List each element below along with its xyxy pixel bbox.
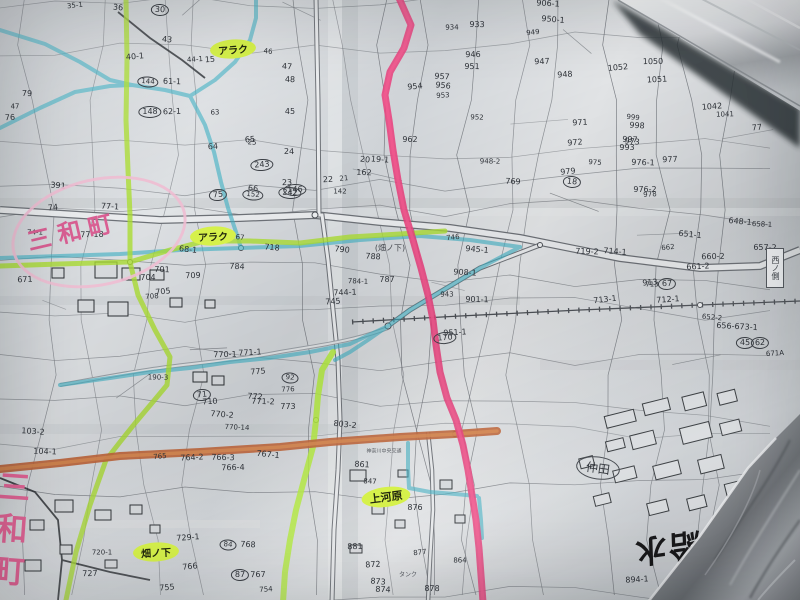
note-tank: タンク [399, 570, 417, 579]
parcel-number: 776 [281, 386, 295, 393]
note-hatanoshita-small: (畑ノ下) [375, 243, 405, 254]
parcel-number: 993 [619, 144, 634, 152]
parcel-number: 894-1 [625, 575, 649, 584]
parcel-number: 755 [159, 583, 175, 592]
parcel-number: 64 [208, 143, 219, 152]
parcel-number: 662 [661, 244, 675, 252]
parcel-number: 948 [557, 70, 573, 79]
parcel-number: 947 [534, 58, 550, 67]
parcel-number: 705 [155, 287, 171, 297]
parcel-number: 770-14 [224, 424, 249, 432]
parcel-number: 913 [642, 278, 658, 287]
parcel-number: 767 [250, 571, 265, 579]
parcel-number: 727 [82, 570, 98, 579]
parcel-number: 765 [153, 453, 167, 461]
parcel-number: 952 [470, 114, 484, 121]
parcel-number: 881 [347, 543, 363, 552]
parcel-number: 63 [210, 109, 219, 116]
parcel-number: 47 [282, 63, 293, 72]
parcel-number: 44-1 [187, 56, 203, 64]
parcel-number: 861 [354, 460, 370, 469]
note-bus-company: 神奈川中央交通 [366, 448, 401, 455]
parcel-number: 766-4 [221, 464, 244, 472]
parcel-number: 906-1 [536, 0, 560, 9]
parcel-number: 719-2 [575, 248, 599, 257]
parcel-number: 962 [402, 136, 417, 144]
parcel-number: 933 [469, 21, 484, 29]
parcel-number: 22 [323, 176, 334, 185]
parcel-number: 79 [22, 90, 32, 98]
parcel-number: 19-1 [371, 155, 390, 164]
parcel-number: 754 [259, 586, 273, 594]
parcel-number: 972 [567, 138, 583, 147]
parcel-number: 1050 [643, 58, 663, 66]
parcel-number: 998 [629, 121, 645, 130]
parcel-number: 847 [363, 478, 377, 485]
parcel-number: 25 [247, 139, 256, 146]
parcel-number: 771-1 [238, 348, 262, 357]
parcel-number: 658-1 [752, 221, 773, 229]
parcel-number: 660-2 [701, 253, 724, 261]
parcel-number: 76 [5, 114, 16, 123]
parcel-number: 769 [505, 178, 521, 187]
parcel-number: 788 [365, 252, 381, 261]
parcel-number: 104-1 [33, 448, 57, 457]
parcel-number: 956 [435, 81, 451, 91]
parcel-number: 901-1 [465, 296, 488, 304]
parcel-number: 190-3 [148, 374, 168, 381]
parcel-number: 61-1 [163, 78, 181, 87]
map-drawing: 高台ノ給水 [0, 0, 800, 600]
parcel-number: 48 [285, 76, 295, 84]
parcel-number: 951 [464, 63, 479, 71]
parcel-number: 62-1 [163, 108, 181, 117]
parcel-number: 874 [375, 586, 391, 595]
parcel-number: 24 [284, 148, 294, 156]
parcel-number: 878 [424, 585, 439, 593]
parcel-number: 704 [140, 274, 155, 282]
parcel-number: 864 [453, 557, 466, 564]
parcel-number: 770-1 [213, 351, 236, 359]
parcel-number: 671 [17, 276, 33, 285]
parcel-number: 1051 [647, 75, 668, 84]
parcel-number: 790 [334, 245, 350, 255]
parcel-number: 77 [752, 123, 763, 132]
parcel-number: 784-1 [348, 278, 369, 286]
parcel-number: 40-1 [126, 52, 145, 62]
parcel-number: 948-2 [480, 158, 500, 165]
map-photo: 高台ノ給水 35-1363079477640-14314461-114862-1… [0, 0, 800, 600]
parcel-number: 877 [413, 549, 427, 557]
parcel-number: 720-1 [92, 550, 112, 557]
parcel-number: 766 [182, 562, 198, 572]
parcel-number: 709 [185, 272, 201, 281]
parcel-number: 714-1 [603, 247, 627, 257]
parcel-number: 15 [205, 56, 216, 65]
parcel-number: 746 [446, 234, 460, 242]
parcel-number: 661-2 [686, 262, 710, 271]
parcel-number: 954 [407, 82, 423, 91]
parcel-number: 908-1 [453, 268, 477, 277]
parcel-number: 729-1 [176, 533, 200, 543]
parcel-number: 971 [572, 119, 588, 128]
parcel-number: 978 [643, 191, 657, 199]
parcel-number: 773 [280, 403, 295, 411]
parcel-number: 745 [325, 297, 341, 306]
parcel-number: 872 [365, 560, 381, 569]
parcel-number: 162 [356, 169, 372, 178]
parcel-number: 977 [662, 156, 678, 165]
parcel-number: 47 [10, 103, 19, 110]
parcel-number: 766-3 [211, 454, 234, 462]
parcel-number: 764-2 [180, 453, 204, 462]
parcel-number: 771-2 [251, 398, 275, 407]
parcel-number: 953 [436, 92, 450, 100]
stamp-label-right-edge: 西ノ側 [766, 248, 784, 288]
parcel-number: 46 [263, 48, 273, 56]
parcel-number: 949 [526, 29, 540, 37]
parcel-number: 712-1 [656, 295, 680, 305]
parcel-number: 103-2 [21, 427, 45, 437]
parcel-number: 975 [588, 159, 602, 167]
parcel-number: 718 [264, 243, 280, 252]
parcel-number: 1041 [716, 111, 734, 119]
parcel-number: 21 [339, 175, 348, 183]
parcel-number: 943 [440, 291, 453, 298]
parcel-number: 934 [445, 24, 458, 31]
parcel-number: 784 [229, 263, 245, 272]
parcel-number: 67 [235, 234, 244, 242]
parcel-number: 787 [379, 276, 394, 284]
parcel-number: 768 [240, 541, 256, 550]
parcel-number: 142 [333, 189, 346, 196]
parcel-number: 1042 [702, 102, 723, 111]
parcel-number: 36 [113, 4, 124, 13]
parcel-number: 45 [285, 108, 295, 116]
parcel-number: 20 [360, 155, 371, 164]
parcel-number: 876 [407, 504, 422, 512]
parcel-number: 976-1 [631, 159, 655, 168]
parcel-number: 671A [766, 350, 784, 358]
parcel-number: 957 [434, 72, 450, 81]
parcel-number: 43 [162, 35, 173, 44]
parcel-number: 701 [154, 266, 170, 275]
parcel-number: 946 [465, 51, 480, 59]
parcel-number: 775 [250, 367, 266, 376]
